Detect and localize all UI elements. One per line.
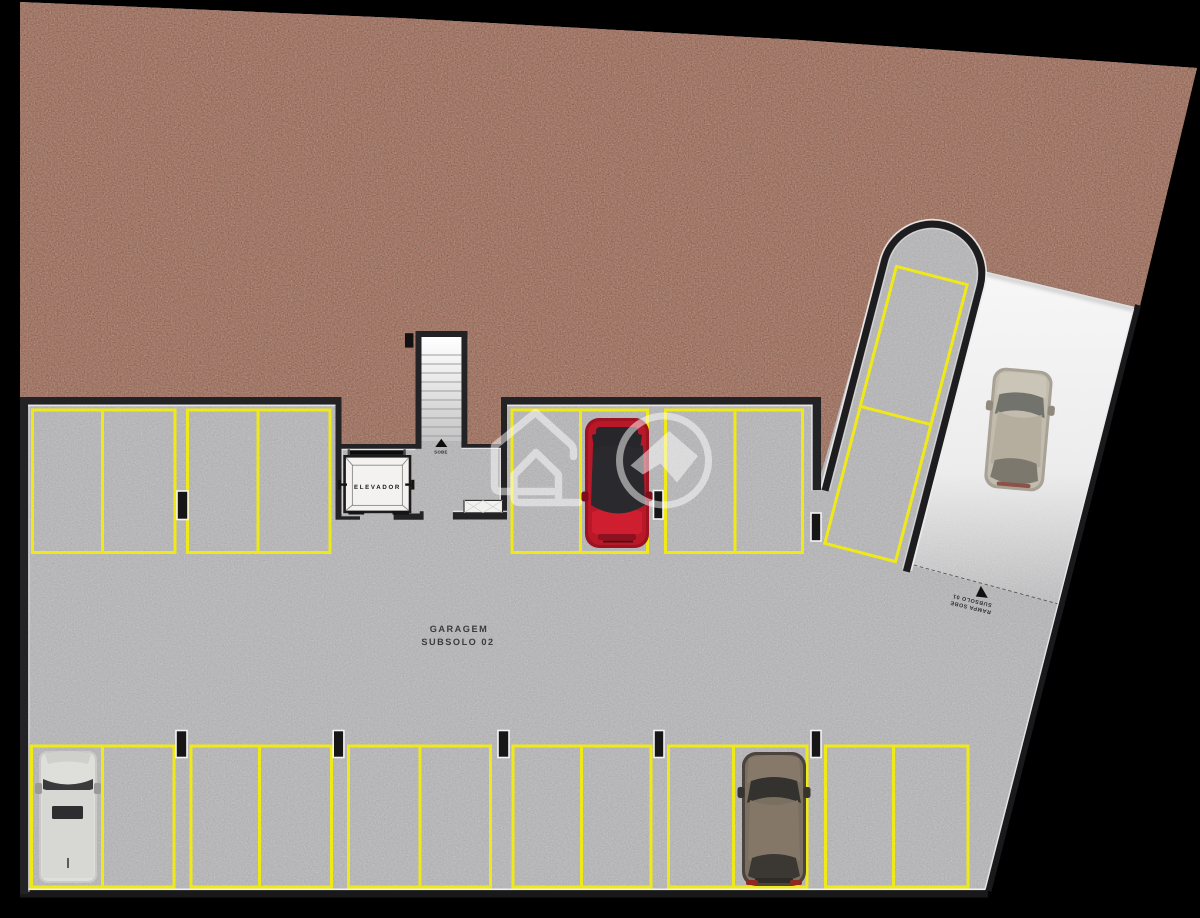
svg-text:SUBSOLO 02: SUBSOLO 02 <box>421 637 494 647</box>
svg-text:GARAGEM: GARAGEM <box>430 624 488 634</box>
svg-text:ELEVADOR: ELEVADOR <box>354 484 401 491</box>
svg-text:SOBE: SOBE <box>434 449 447 454</box>
